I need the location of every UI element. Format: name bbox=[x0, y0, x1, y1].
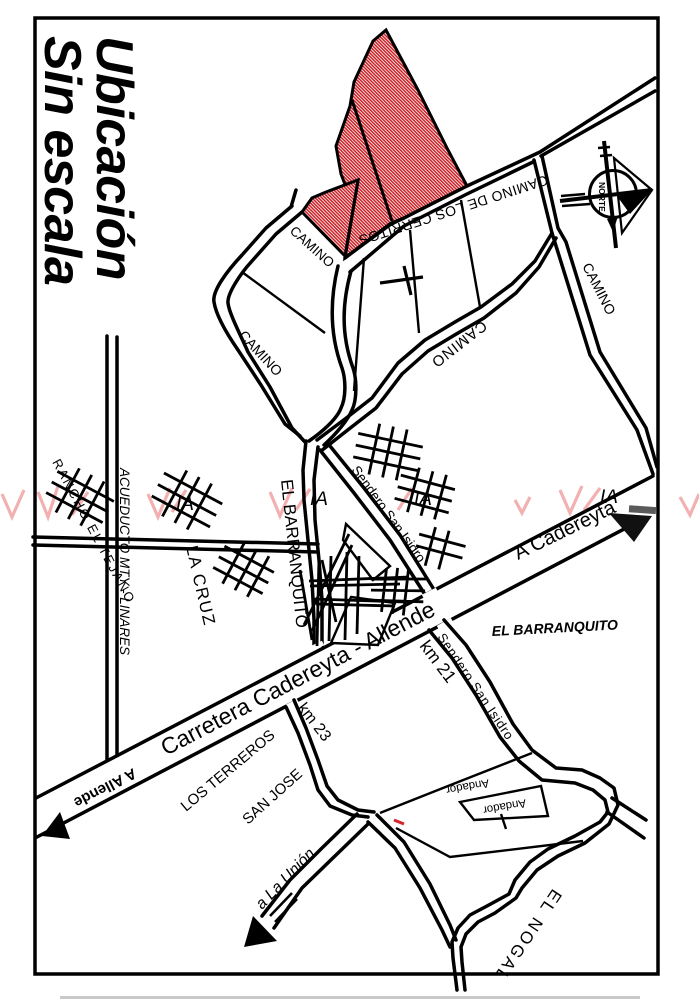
svg-text:Ubicación: Ubicación bbox=[85, 36, 143, 280]
svg-text:NORTE: NORTE bbox=[597, 182, 607, 212]
svg-text:Sin escala: Sin escala bbox=[33, 36, 91, 285]
svg-text:ACUEDUCTO MTY - LINARES: ACUEDUCTO MTY - LINARES bbox=[117, 467, 132, 655]
